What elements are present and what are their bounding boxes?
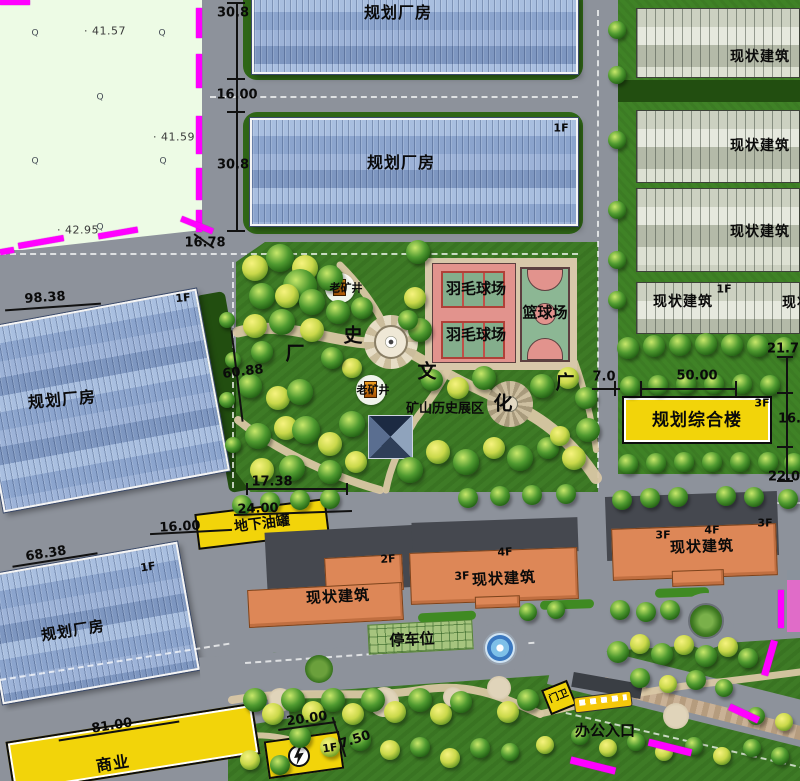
feature-label: 羽毛球场 xyxy=(446,328,506,343)
mini-plaza xyxy=(487,676,511,700)
tree xyxy=(320,489,340,509)
dimension-label: 16.00 xyxy=(159,519,201,534)
tree xyxy=(608,131,626,149)
tree xyxy=(576,418,600,442)
survey-mark: Q xyxy=(31,30,38,39)
tree xyxy=(716,486,736,506)
tree xyxy=(695,333,717,355)
tree xyxy=(290,490,310,510)
floor-tag: 3F xyxy=(454,570,470,582)
floor-tag: 2F xyxy=(380,553,396,565)
tree xyxy=(674,452,694,472)
tree xyxy=(695,645,717,667)
tree xyxy=(342,703,364,725)
tree xyxy=(643,335,665,357)
tree xyxy=(440,748,460,768)
floor-tag: 3F xyxy=(754,398,769,409)
dimension-label: 50.00 xyxy=(676,370,717,383)
tree xyxy=(447,377,469,399)
tree xyxy=(743,739,761,757)
tree xyxy=(318,460,342,484)
tree xyxy=(483,437,505,459)
floor-tag: 1F xyxy=(716,284,731,295)
tree xyxy=(547,601,565,619)
elevation-label: · 41.57 xyxy=(84,26,126,37)
dimension-line xyxy=(777,392,793,394)
tree xyxy=(612,490,632,510)
dimension-line xyxy=(227,78,245,80)
tree xyxy=(550,426,570,446)
dimension-label: 98.38 xyxy=(24,290,66,306)
dimension-label: 17.38 xyxy=(251,476,292,489)
tree xyxy=(240,750,260,770)
tree xyxy=(470,738,490,758)
dimension-label: 16.78 xyxy=(184,237,225,250)
tree xyxy=(262,703,284,725)
floor-tag: 1F xyxy=(175,292,191,304)
tree xyxy=(458,488,478,508)
dimension-line xyxy=(735,381,737,396)
glass-pyramid xyxy=(368,415,413,459)
building-label: 现状建筑 xyxy=(730,225,790,239)
tree xyxy=(292,416,320,444)
dimension-line xyxy=(227,111,245,113)
building-label: 规划厂房 xyxy=(367,155,435,171)
tree xyxy=(530,374,554,398)
tree xyxy=(517,689,539,711)
tree xyxy=(617,337,639,359)
tree xyxy=(397,457,423,483)
floor-tag: 3F xyxy=(757,518,772,529)
tree xyxy=(730,452,750,472)
tree xyxy=(636,602,656,622)
tree xyxy=(490,486,510,506)
tree xyxy=(245,423,271,449)
tree xyxy=(608,21,626,39)
mini-plaza xyxy=(663,703,689,729)
tree xyxy=(251,341,273,363)
floor-tag: 1F xyxy=(322,741,339,754)
tree xyxy=(243,314,267,338)
tree xyxy=(575,387,597,409)
tree xyxy=(519,603,537,621)
building-label: 规划厂房 xyxy=(40,619,106,644)
tree xyxy=(361,688,385,712)
tree xyxy=(345,451,367,473)
tree xyxy=(775,713,793,731)
tree xyxy=(771,747,789,765)
tree xyxy=(630,668,650,688)
survey-mark: Q xyxy=(31,158,38,167)
tree xyxy=(648,375,668,395)
tree xyxy=(659,675,677,693)
tree xyxy=(339,411,365,437)
tree xyxy=(380,740,400,760)
dimension-line xyxy=(246,483,248,495)
road-centerline xyxy=(210,96,578,98)
tree xyxy=(618,454,638,474)
tree xyxy=(674,635,694,655)
tree xyxy=(608,201,626,219)
boundary-dash xyxy=(196,116,202,154)
tree xyxy=(747,335,769,357)
tree xyxy=(497,701,519,723)
tree xyxy=(713,747,731,765)
dimension-line xyxy=(640,381,642,396)
building-label: 规划厂房 xyxy=(27,389,96,411)
tree xyxy=(472,366,496,390)
building-label: 现状建筑 xyxy=(653,295,713,309)
tree xyxy=(610,600,630,620)
building-label: 现状建筑 xyxy=(730,139,790,153)
feature-label: 停车位 xyxy=(389,631,435,648)
fountain xyxy=(483,631,517,665)
tree xyxy=(342,358,362,378)
floor-tag: 1F xyxy=(553,123,568,134)
tree xyxy=(318,432,342,456)
tree xyxy=(242,255,268,281)
tree xyxy=(287,379,313,405)
tree xyxy=(266,244,294,272)
tree xyxy=(501,743,519,761)
dimension-label: 21.7 xyxy=(767,343,799,356)
tree xyxy=(668,487,688,507)
feature-label: 老矿井 xyxy=(357,385,390,396)
dimension-label: 30.8 xyxy=(217,7,249,20)
building-label: 现状建筑 xyxy=(730,50,790,64)
existing-building-3-wing xyxy=(672,569,725,587)
tree xyxy=(269,309,295,335)
floor-tag: 4F xyxy=(497,546,513,558)
tree xyxy=(608,251,626,269)
survey-mark: Q xyxy=(159,158,166,167)
dimension-label: 16.00 xyxy=(216,89,257,102)
boundary-dash xyxy=(196,54,202,88)
tree xyxy=(408,688,432,712)
tree xyxy=(738,648,758,668)
tree xyxy=(225,437,241,453)
dimension-label: 16.0 xyxy=(778,413,800,426)
tree xyxy=(321,347,343,369)
tree xyxy=(410,737,430,757)
survey-mark: Q xyxy=(96,94,103,103)
plaza-character: 广 xyxy=(555,374,574,393)
dimension-line xyxy=(227,2,245,4)
tree xyxy=(640,488,660,508)
boundary-dash xyxy=(196,168,202,200)
tree xyxy=(715,679,733,697)
building-label: 规划厂房 xyxy=(364,5,432,21)
tree xyxy=(702,452,722,472)
tree xyxy=(646,453,666,473)
tree xyxy=(744,487,764,507)
dimension-label: 20.00 xyxy=(286,710,329,729)
dimension-line xyxy=(227,230,245,232)
dimension-line xyxy=(640,388,737,390)
tree xyxy=(351,297,373,319)
tree xyxy=(669,334,691,356)
tree xyxy=(270,755,290,775)
building-label: 规划综合楼 xyxy=(652,413,742,430)
tree xyxy=(556,484,576,504)
tree xyxy=(507,445,533,471)
pink-building-body xyxy=(787,580,800,632)
feature-label: 办公入口 xyxy=(575,724,635,739)
building-label: 现状建筑 xyxy=(782,296,800,310)
tree xyxy=(686,670,706,690)
feature-label: 篮球场 xyxy=(522,306,567,321)
road-island-bush xyxy=(305,655,333,683)
tree xyxy=(651,643,673,665)
elevation-label: · 41.59 xyxy=(153,132,195,143)
floor-tag: 3F xyxy=(655,530,670,541)
tree xyxy=(778,489,798,509)
tree xyxy=(426,440,450,464)
tree xyxy=(607,641,629,663)
floor-tag: 1F xyxy=(140,560,157,573)
plaza-character: 文 xyxy=(417,363,436,382)
survey-mark: Q xyxy=(158,30,165,39)
tree xyxy=(450,691,472,713)
lightning-icon xyxy=(289,746,309,766)
tree xyxy=(660,600,680,620)
tree xyxy=(406,240,430,264)
building-label: 现状建筑 xyxy=(472,570,537,588)
tree xyxy=(430,703,452,725)
tree xyxy=(219,312,235,328)
floor-tag: 4F xyxy=(704,525,719,536)
tree xyxy=(219,392,235,408)
site-plan: 规划厂房规划厂房规划厂房规划厂房现状建筑现状建筑现状建筑现状建筑现状建筑规划综合… xyxy=(0,0,800,781)
tree xyxy=(404,287,426,309)
survey-mark: Q xyxy=(96,224,103,233)
existing-building-2-step xyxy=(475,595,520,609)
road-centerline xyxy=(597,10,599,488)
roundabout-green xyxy=(688,603,724,639)
plaza-character: 厂 xyxy=(285,345,304,364)
dimension-label: 30.8 xyxy=(217,159,249,172)
tree xyxy=(300,318,324,342)
boundary-dash xyxy=(778,590,784,628)
dimension-line xyxy=(236,2,238,232)
tree xyxy=(453,449,479,475)
tree xyxy=(599,739,617,757)
tree xyxy=(562,446,586,470)
pink-building xyxy=(787,570,800,580)
dimension-line xyxy=(346,483,348,495)
plaza-character: 化 xyxy=(493,395,512,414)
tree xyxy=(721,334,743,356)
tree xyxy=(326,300,350,324)
tree xyxy=(620,376,640,396)
dimension-label: 22.0 xyxy=(768,471,800,484)
tree xyxy=(384,701,406,723)
tree xyxy=(608,66,626,84)
feature-label: 羽毛球场 xyxy=(446,282,506,297)
tree xyxy=(718,637,738,657)
feature-label: 矿山历史展区 xyxy=(406,403,484,416)
plaza-character: 史 xyxy=(343,327,362,346)
building-label: 现状建筑 xyxy=(670,538,735,555)
tree xyxy=(249,283,275,309)
feature-label: 老矿井 xyxy=(330,283,363,294)
boundary-dash xyxy=(0,0,30,5)
tree xyxy=(275,284,299,308)
dimension-line xyxy=(777,446,793,448)
tree xyxy=(299,289,325,315)
tree xyxy=(289,726,311,748)
round-plaza-center xyxy=(385,336,397,348)
tree xyxy=(536,736,554,754)
tree xyxy=(522,485,542,505)
elevation-label: · 42.95 xyxy=(57,225,99,236)
dimension-label: 7.0 xyxy=(592,371,615,384)
boundary-dash xyxy=(196,8,202,38)
building-label: 现状建筑 xyxy=(306,588,371,606)
tree xyxy=(608,291,626,309)
tree xyxy=(630,634,650,654)
dimension-label: 68.38 xyxy=(25,544,68,563)
tree xyxy=(398,310,418,330)
